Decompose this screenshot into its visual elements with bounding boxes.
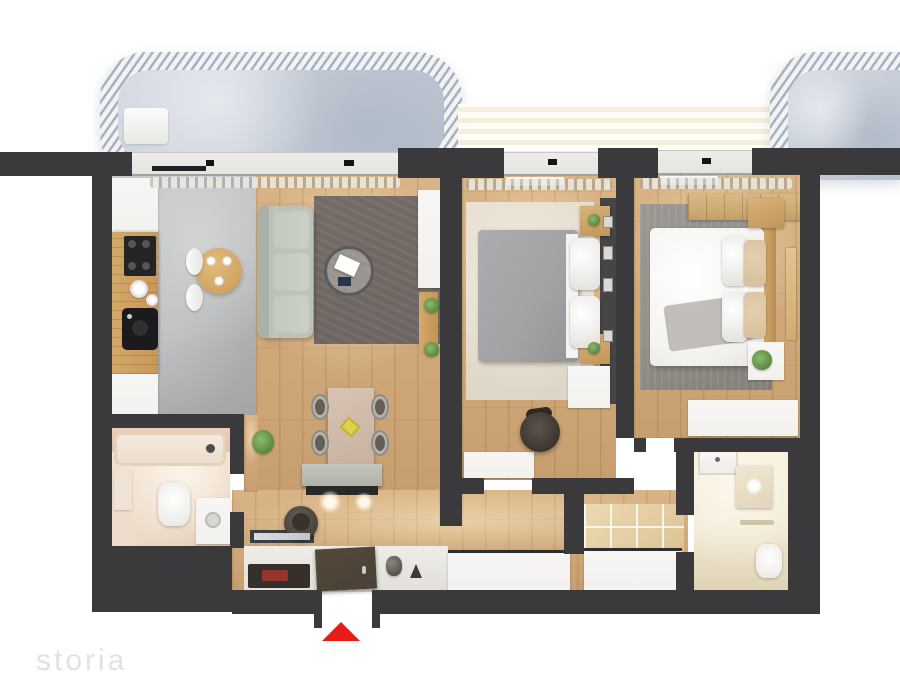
plant: [752, 350, 772, 370]
wall-mirror: [786, 248, 796, 340]
pouf-top: [292, 513, 310, 531]
hall-wardrobe: [448, 550, 570, 593]
nightstand: [748, 198, 784, 228]
plant: [252, 430, 274, 454]
sink-basin: [132, 320, 148, 336]
wall: [440, 174, 462, 480]
wall: [92, 546, 232, 612]
wall: [92, 152, 112, 548]
tv-unit: [418, 190, 442, 288]
pendant-light-glow: [318, 490, 342, 514]
dining-chair: [311, 430, 329, 456]
wall: [688, 590, 820, 614]
wall: [376, 590, 688, 614]
sofa-cushion: [272, 210, 310, 250]
pillow: [744, 240, 766, 286]
dining-chair: [371, 430, 389, 456]
entrance-arrow-icon: [322, 622, 360, 641]
tablet: [338, 277, 351, 286]
wall: [616, 174, 634, 438]
bedroom1-dresser: [568, 366, 610, 408]
dish: [222, 256, 232, 266]
wall: [752, 148, 900, 175]
window-frame-tick: [702, 158, 711, 164]
pillow: [570, 296, 600, 348]
desk: [464, 452, 534, 478]
wall: [788, 442, 820, 614]
drain-icon: [715, 457, 720, 462]
wall: [564, 492, 584, 554]
plate: [130, 280, 148, 298]
hall-wardrobe: [584, 548, 682, 593]
decor-cone: [410, 564, 422, 578]
dish: [214, 276, 224, 286]
kitchen-island: [302, 464, 382, 486]
plant: [588, 342, 600, 354]
wall: [232, 590, 318, 614]
wall: [230, 414, 244, 474]
curtain: [466, 179, 612, 190]
wall: [0, 152, 132, 176]
toilet: [756, 544, 782, 578]
washer-drum-icon: [205, 512, 221, 528]
watermark: storia: [36, 644, 127, 675]
pillow: [570, 238, 600, 290]
pendant-light-glow: [354, 492, 374, 512]
dog-figurine: [386, 556, 402, 576]
sofa-cushion: [272, 294, 310, 334]
floor-plan-canvas: storia: [0, 0, 900, 675]
faucet-icon: [206, 444, 215, 453]
wall: [230, 512, 244, 548]
bathroom1-shelf: [114, 470, 132, 510]
window-frame-tick: [548, 159, 557, 165]
entry-door-leaf: [315, 546, 377, 591]
dish: [206, 256, 216, 266]
breakfast-chair: [186, 284, 203, 311]
burner-icon: [142, 262, 150, 270]
picture-frame: [603, 216, 613, 228]
pillow: [744, 292, 766, 338]
desk-chair: [520, 412, 560, 452]
wall: [800, 170, 820, 448]
picture-frame: [603, 330, 613, 342]
curtain: [640, 178, 792, 189]
bedroom2-dresser: [688, 400, 798, 436]
curtain: [150, 177, 400, 188]
picture-frame: [603, 246, 613, 260]
window: [132, 152, 398, 176]
balcony-mat: [124, 108, 168, 144]
hall-mirror-glass: [254, 533, 310, 540]
burner-icon: [128, 262, 136, 270]
hallway-floor-patch: [244, 415, 258, 492]
wall: [92, 414, 244, 428]
wall: [634, 438, 646, 452]
breakfast-chair: [186, 248, 203, 275]
wall: [676, 443, 694, 515]
towel-rail: [740, 520, 774, 525]
burner-icon: [128, 240, 136, 248]
faucet-icon: [127, 314, 132, 319]
door-jamb: [314, 590, 322, 628]
picture-frame: [603, 278, 613, 292]
window-frame-tick: [344, 160, 354, 166]
plant: [424, 298, 439, 313]
bedroom1-bed: [478, 230, 578, 362]
wall: [676, 552, 694, 592]
dining-chair: [311, 394, 329, 420]
toilet: [158, 482, 190, 526]
washbasin: [746, 478, 762, 494]
sofa-cushion: [272, 252, 310, 292]
plate: [146, 294, 158, 306]
burner-icon: [142, 240, 150, 248]
breakfast-table: [196, 248, 242, 294]
window-frame-tick: [206, 160, 214, 166]
plant: [588, 214, 600, 226]
dining-chair: [371, 394, 389, 420]
wall: [440, 478, 484, 494]
doormat-accent: [262, 570, 288, 581]
corridor-tiles: [584, 504, 684, 554]
kitchen-cabinet-bottom: [112, 374, 158, 415]
plant: [424, 342, 439, 357]
door-handle-icon: [362, 566, 366, 574]
balcony-door-track: [152, 166, 206, 171]
